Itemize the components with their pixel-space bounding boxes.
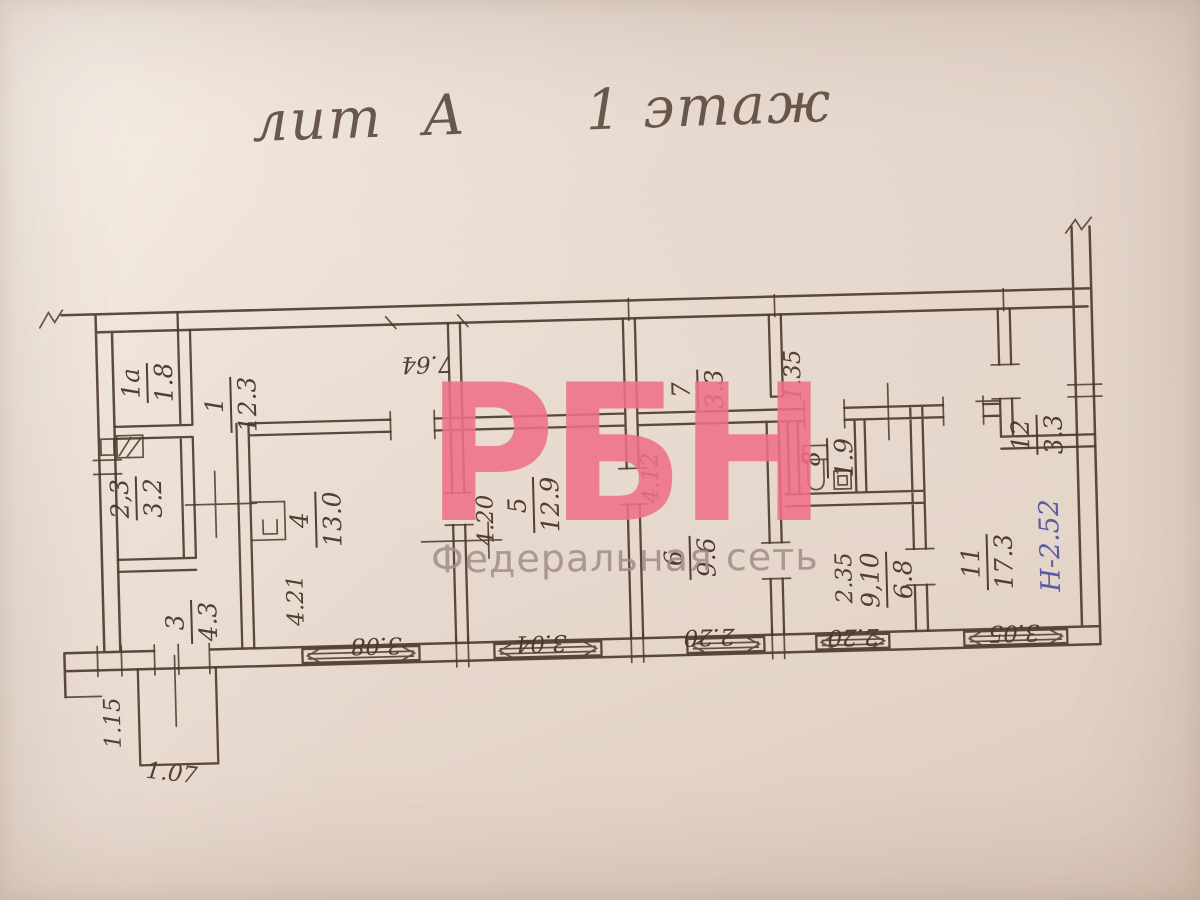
dim-window-room11: 3.05 [988,619,1040,646]
dim-porch-width: 1.07 [145,758,199,790]
room-area: 17.3 [989,533,1019,589]
room-area: 1.8 [149,362,179,403]
room-area: 3.2 [138,478,168,519]
room-label-11: 11 17.3 [956,533,1019,591]
room-label-1a: 1а 1.8 [116,362,179,404]
dim-window-room5: 3.04 [515,629,567,656]
room-number: 9,10 [855,552,885,608]
room-label-9-10: 9,10 6.8 [855,551,918,609]
room-label-2-3: 2,3 3.2 [105,476,168,522]
room-label-1: 1 12.3 [199,376,262,434]
room-area: 6.8 [888,559,918,600]
room-number: 11 [956,546,986,579]
room-number: 1 [200,397,229,414]
dim-window-room910: 2.20 [827,623,880,650]
room-area: 12.3 [232,376,262,432]
porch-outline [138,667,218,765]
dim-room4-depth: 4.21 [282,574,309,627]
room-number: 3 [160,614,189,631]
flue-icon [250,501,285,540]
fraction-line [191,600,192,644]
watermark-logo: РБН [426,360,821,550]
room-label-3: 3 4.3 [160,599,223,645]
room-label-4: 4 13.0 [284,491,347,549]
fraction-line [827,438,828,478]
room-area: 1.9 [829,437,859,478]
fraction-line [147,363,148,403]
dim-porch-depth: 1.15 [100,697,127,749]
room-number: 12 [1006,419,1036,452]
room-area: 13.0 [317,491,347,547]
fraction-line [136,476,137,520]
room-label-12: 12 3.3 [1005,414,1068,456]
room-area: 4.3 [193,601,223,643]
dim-window-room4: 3.08 [350,631,402,658]
room-number: 1а [116,368,146,400]
room-area: 3.3 [1038,414,1068,455]
watermark-subtitle: Федеральная сеть [431,535,819,582]
room-number: 2,3 [105,479,135,521]
room-number: 4 [285,512,314,530]
dim-room910-width: 2.35 [831,552,858,605]
fraction-line [1036,415,1037,455]
dim-window-room6: 2.20 [683,623,736,650]
height-mark-blue-ink: Н-2.52 [1034,499,1067,594]
